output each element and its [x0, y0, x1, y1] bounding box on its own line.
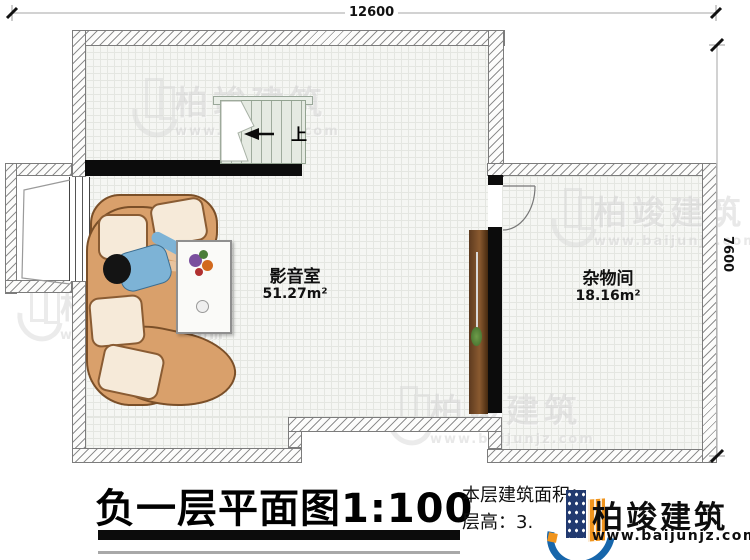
- wall-top: [72, 30, 505, 46]
- flower-decoration: [199, 250, 208, 259]
- media-room-floor-lower: [86, 417, 288, 449]
- flower-decoration: [195, 268, 203, 276]
- person-head: [103, 254, 131, 284]
- plan-title-text: 负一层平面图: [95, 486, 341, 532]
- plan-title-scale: 1:100: [341, 486, 473, 532]
- floor-plan-canvas: 柏竣建筑 www.baijunjz.com 柏竣建筑 www.baijunjz.…: [0, 0, 750, 560]
- wall-storage-right: [702, 163, 717, 463]
- room-label-storage: 杂物间: [560, 270, 656, 289]
- window-well-interior: [17, 176, 72, 280]
- media-cabinet: [469, 230, 488, 414]
- room-area-media: 51.27m²: [250, 287, 340, 302]
- company-logo-url: www.baijunjz.com: [592, 528, 750, 544]
- table-dish: [196, 300, 209, 313]
- window-well-bottom: [5, 280, 72, 293]
- sofa-cushion: [88, 294, 146, 349]
- partition-wall-divider: [488, 227, 502, 413]
- wall-bottom-left: [72, 448, 302, 463]
- floor-height-label: 层高：3.: [462, 513, 533, 533]
- room-label-media: 影音室: [250, 268, 340, 287]
- storage-room-floor: [502, 176, 702, 449]
- wall-left-upper: [72, 30, 86, 177]
- title-underline-thick: [98, 530, 460, 540]
- wall-left-lower: [72, 281, 86, 463]
- title-underline-thin: [98, 551, 460, 554]
- dimension-top-label: 12600: [345, 5, 398, 20]
- dimension-right-label: 7600: [720, 232, 735, 276]
- window-well-left: [5, 163, 17, 294]
- wall-step-right: [488, 431, 502, 449]
- wall-bottom-middle: [288, 417, 502, 432]
- plant-icon: [471, 327, 482, 346]
- wall-bottom-right: [487, 449, 717, 463]
- plan-title: 负一层平面图1:100: [95, 476, 473, 534]
- wall-right-main: [488, 30, 504, 177]
- wall-step-left: [288, 431, 302, 448]
- room-area-storage: 18.16m²: [560, 289, 656, 304]
- flower-decoration: [202, 260, 213, 271]
- stairs-up-label: 上: [291, 126, 307, 144]
- door-jamb: [488, 175, 503, 185]
- wall-storage-top: [487, 163, 717, 176]
